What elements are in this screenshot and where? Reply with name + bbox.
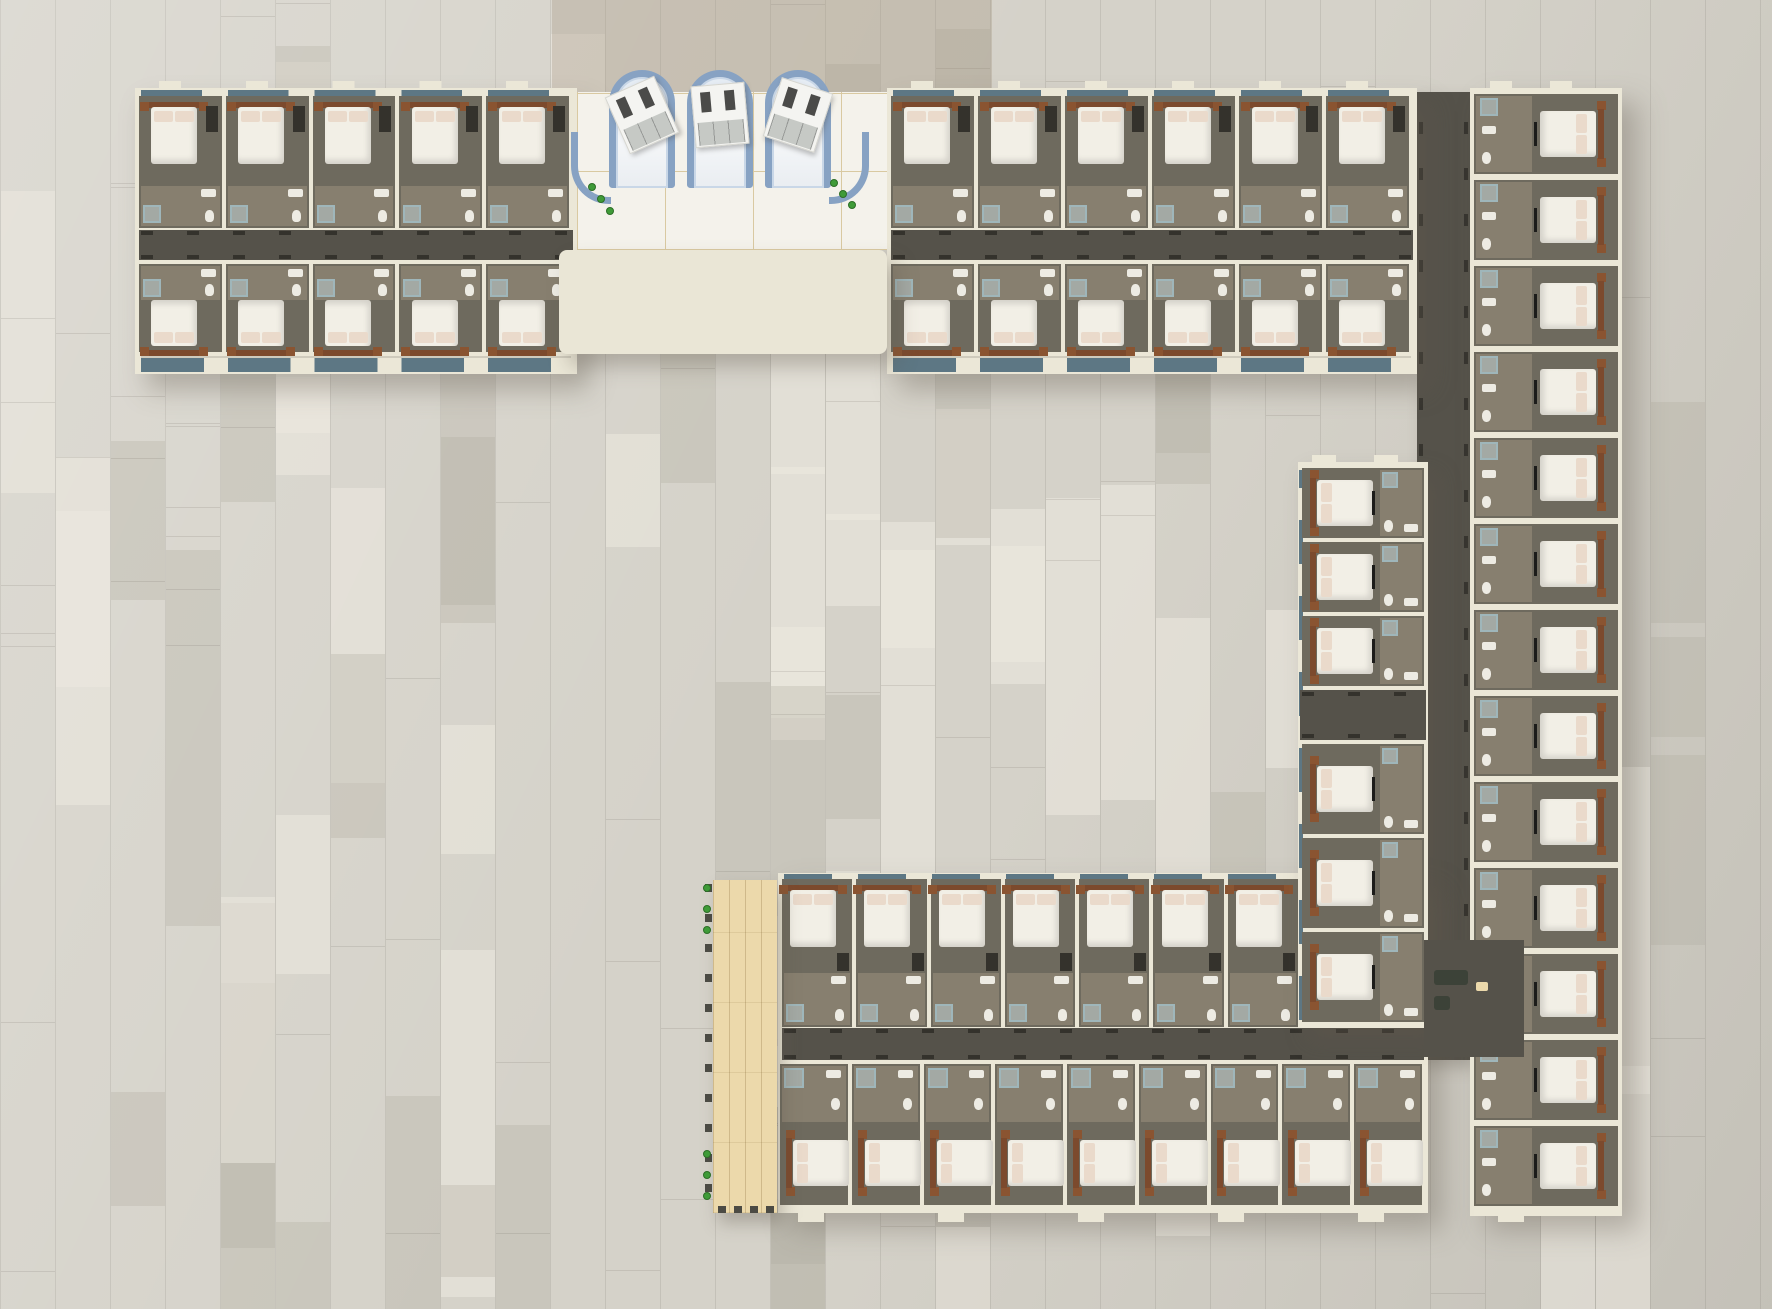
closet: [1132, 106, 1144, 132]
shower-stall: [143, 279, 161, 297]
toilet: [465, 284, 474, 296]
shower-stall: [982, 279, 1000, 297]
shower-stall: [1143, 1068, 1163, 1088]
corridor-door-marks: [1302, 692, 1422, 696]
bed: [1540, 713, 1596, 759]
corridor: [139, 230, 573, 260]
nightstand: [401, 347, 410, 356]
bed-headboard: [1145, 1138, 1151, 1188]
bed-headboard: [1598, 109, 1604, 159]
coffee-table: [1476, 982, 1488, 991]
tv-panel: [1372, 491, 1375, 515]
bed-headboard: [786, 1138, 792, 1188]
pillow: [1016, 894, 1035, 905]
shower-stall: [1069, 205, 1087, 223]
wood-plank-joint: [661, 368, 715, 369]
bed-headboard: [1310, 478, 1316, 528]
sink: [1404, 598, 1418, 606]
wood-plank-joint: [1431, 1293, 1485, 1294]
bed-headboard: [1598, 1141, 1604, 1191]
sink: [1128, 976, 1143, 984]
sink: [969, 1070, 984, 1078]
nightstand: [952, 347, 961, 356]
tv-panel: [1534, 896, 1537, 920]
hotel-room: [1326, 96, 1409, 228]
sink: [1388, 269, 1403, 277]
hotel-room: [780, 1064, 848, 1205]
toilet: [1131, 210, 1140, 222]
tv-panel: [1534, 122, 1537, 146]
wood-plank-joint: [991, 767, 1045, 768]
toilet: [1218, 210, 1227, 222]
nightstand: [1076, 885, 1085, 894]
closet: [958, 106, 970, 132]
wood-floor-plank: [56, 457, 110, 687]
hotel-room: [891, 264, 974, 352]
pillow: [1239, 894, 1258, 905]
wood-floor-plank: [1046, 498, 1100, 815]
nightstand: [401, 102, 410, 111]
toilet: [1058, 1009, 1067, 1021]
pillow: [1576, 544, 1587, 563]
nightstand: [1597, 502, 1606, 511]
wood-plank-joint: [1, 585, 55, 586]
elevator-indicator: [700, 92, 712, 113]
nightstand: [1213, 347, 1222, 356]
wall-tab-strip: [798, 1213, 1618, 1222]
wood-plank-joint: [331, 946, 385, 947]
hotel-room: [226, 264, 309, 352]
corridor-door-marks: [893, 255, 1411, 259]
hotel-room: [139, 96, 222, 228]
nightstand: [1387, 347, 1396, 356]
shower-stall: [1480, 614, 1498, 632]
hotel-room: [1153, 879, 1223, 1027]
wood-floor-plank: [1651, 755, 1705, 945]
closet: [293, 106, 305, 132]
sink: [374, 269, 389, 277]
pillow: [1081, 111, 1100, 122]
pillow: [1012, 1164, 1023, 1183]
hotel-room: [1302, 616, 1424, 686]
shower-stall: [1156, 205, 1174, 223]
toilet: [1482, 496, 1491, 508]
sink: [1127, 189, 1142, 197]
railing-post: [705, 1034, 712, 1042]
nightstand: [1217, 1187, 1226, 1196]
nightstand: [1597, 1104, 1606, 1113]
shower-stall: [895, 205, 913, 223]
wing-vertical: [1298, 462, 1428, 1028]
shower-stall: [1480, 356, 1498, 374]
wood-floor-plank: [496, 1125, 550, 1309]
nightstand: [1597, 1018, 1606, 1027]
pillow: [814, 894, 833, 905]
pillow: [349, 332, 368, 343]
closet: [986, 953, 998, 971]
sofa: [1434, 970, 1468, 985]
pillow: [1189, 111, 1208, 122]
bed-headboard: [858, 1138, 864, 1188]
pillow: [328, 111, 347, 122]
wood-plank-joint: [826, 692, 880, 693]
nightstand: [1151, 885, 1160, 894]
sink: [461, 269, 476, 277]
wood-plank-joint: [606, 1270, 660, 1271]
corridor-door-marks: [1302, 734, 1422, 738]
hotel-room: [1302, 838, 1424, 928]
pillow: [1371, 1143, 1382, 1162]
sink: [1404, 672, 1418, 680]
pillow: [1576, 372, 1587, 391]
hotel-room: [1239, 264, 1322, 352]
pillow: [963, 894, 982, 905]
wood-floor-plank: [276, 815, 330, 974]
nightstand: [1241, 347, 1250, 356]
plant: [703, 926, 711, 934]
pillow: [1168, 111, 1187, 122]
shower-stall: [1286, 1068, 1306, 1088]
toilet: [1384, 1004, 1393, 1016]
sink: [1301, 269, 1316, 277]
bed: [1540, 971, 1596, 1017]
pillow: [1255, 332, 1274, 343]
nightstand: [1225, 885, 1234, 894]
toilet: [1482, 840, 1491, 852]
wood-plank-joint: [1651, 1038, 1705, 1039]
bed-headboard: [1310, 552, 1316, 602]
shower-stall: [895, 279, 913, 297]
sink: [1203, 976, 1218, 984]
wood-plank-joint: [386, 1233, 440, 1234]
pillow: [942, 894, 961, 905]
nightstand: [1241, 102, 1250, 111]
pillow: [1090, 894, 1109, 905]
nightstand: [858, 1187, 867, 1196]
pillow: [1576, 823, 1587, 842]
wood-plank-joint: [1046, 560, 1100, 561]
sink: [1388, 189, 1403, 197]
shower-stall: [1243, 205, 1261, 223]
bed-headboard: [1310, 858, 1316, 908]
bed-headboard: [1360, 1138, 1366, 1188]
nightstand: [1126, 347, 1135, 356]
nightstand: [1597, 588, 1606, 597]
hotel-room: [1211, 1064, 1279, 1205]
shower-stall: [928, 1068, 948, 1088]
tv-panel: [1372, 565, 1375, 589]
corridor-door-marks: [141, 255, 571, 259]
tv-panel: [1534, 1068, 1537, 1092]
toilet: [465, 210, 474, 222]
wood-plank-joint: [1, 318, 55, 319]
nightstand: [1067, 102, 1076, 111]
pillow: [1576, 458, 1587, 477]
toilet: [1482, 1184, 1491, 1196]
pillow: [869, 1164, 880, 1183]
wood-floor-plank: [441, 437, 495, 623]
wood-plank-joint: [166, 426, 220, 427]
hotel-room: [1005, 879, 1075, 1027]
pillow: [1228, 1143, 1239, 1162]
sink: [1214, 269, 1229, 277]
pillow: [1363, 111, 1382, 122]
wood-plank-joint: [1101, 515, 1155, 516]
shower-stall: [403, 279, 421, 297]
wood-floor-plank: [1651, 637, 1705, 737]
hotel-room: [1474, 782, 1618, 862]
shower-stall: [1480, 1130, 1498, 1148]
pillow: [1576, 565, 1587, 584]
hotel-room: [1302, 468, 1424, 538]
nightstand: [140, 347, 149, 356]
pillow: [262, 111, 281, 122]
hotel-room: [313, 96, 396, 228]
toilet: [1392, 284, 1401, 296]
pillow: [1576, 200, 1587, 219]
pillow: [1576, 716, 1587, 735]
toilet: [1392, 210, 1401, 222]
wood-plank-joint: [771, 714, 825, 715]
hotel-room: [1474, 610, 1618, 690]
shower-stall: [1480, 442, 1498, 460]
toilet: [1281, 1009, 1290, 1021]
nightstand: [1328, 347, 1337, 356]
sink: [831, 976, 846, 984]
toilet: [910, 1009, 919, 1021]
railing-post: [718, 1206, 726, 1213]
wood-floor-plank: [826, 514, 880, 606]
railing-post: [705, 1124, 712, 1132]
shower-stall: [1358, 1068, 1378, 1088]
wood-floor-plank: [386, 1096, 440, 1309]
nightstand: [980, 102, 989, 111]
nightstand: [893, 347, 902, 356]
pillow: [241, 332, 260, 343]
sink: [201, 189, 216, 197]
elevator-indicator: [805, 94, 821, 116]
toilet: [378, 210, 387, 222]
railing-post: [750, 1206, 758, 1213]
nightstand: [1310, 527, 1319, 536]
pillow: [907, 332, 926, 343]
shower-stall: [1480, 270, 1498, 288]
sink: [898, 1070, 913, 1078]
toilet: [1118, 1098, 1127, 1110]
hotel-room: [1474, 524, 1618, 604]
sink: [1404, 1008, 1418, 1016]
sink: [826, 1070, 841, 1078]
bed-headboard: [1310, 626, 1316, 676]
wood-plank-joint: [1, 633, 55, 634]
closet: [912, 953, 924, 971]
pillow: [1321, 483, 1332, 502]
wood-plank-joint: [111, 458, 165, 459]
sink: [1256, 1070, 1271, 1078]
toilet: [1207, 1009, 1216, 1021]
toilet: [1482, 238, 1491, 250]
corridor-crossing: [1300, 690, 1426, 740]
pillow: [175, 111, 194, 122]
shower-stall: [982, 205, 1000, 223]
nightstand: [1073, 1187, 1082, 1196]
toilet: [1384, 520, 1393, 532]
hotel-room: [1239, 96, 1322, 228]
pillow: [1321, 631, 1332, 650]
sink: [1482, 470, 1496, 478]
wood-floor-plank: [441, 725, 495, 854]
toilet: [205, 284, 214, 296]
pillow: [994, 332, 1013, 343]
shower-stall: [490, 205, 508, 223]
shower-stall: [230, 279, 248, 297]
wood-plank-joint: [386, 678, 440, 679]
sink: [1482, 728, 1496, 736]
pillow: [241, 111, 260, 122]
pillow: [1321, 957, 1332, 976]
sink: [1277, 976, 1292, 984]
nightstand: [1067, 347, 1076, 356]
toilet: [1333, 1098, 1342, 1110]
pillow: [523, 111, 542, 122]
shower-stall: [230, 205, 248, 223]
wall-tab-strip: [1490, 81, 1602, 88]
pillow: [1255, 111, 1274, 122]
hotel-room: [1139, 1064, 1207, 1205]
bed-headboard: [1598, 195, 1604, 245]
nightstand: [1154, 102, 1163, 111]
shower-stall: [1382, 620, 1398, 636]
shower-stall: [1382, 748, 1398, 764]
floorplan-render: [0, 0, 1772, 1309]
nightstand: [488, 347, 497, 356]
pillow: [328, 332, 347, 343]
toilet: [292, 284, 301, 296]
hotel-room: [1152, 96, 1235, 228]
hotel-room: [1302, 744, 1424, 834]
shower-stall: [1069, 279, 1087, 297]
bed-headboard: [1598, 453, 1604, 503]
hotel-room: [1474, 180, 1618, 260]
closet: [1060, 953, 1072, 971]
wood-plank-joint: [166, 507, 220, 508]
toilet: [835, 1009, 844, 1021]
shower-stall: [1330, 279, 1348, 297]
nightstand: [1210, 885, 1219, 894]
shower-stall: [786, 1004, 804, 1022]
hotel-room: [486, 264, 569, 352]
shower-stall: [1480, 98, 1498, 116]
shower-stall: [1330, 205, 1348, 223]
pillow: [1321, 863, 1332, 882]
wood-plank-joint: [496, 1233, 550, 1234]
shower-stall: [860, 1004, 878, 1022]
shower-stall: [1083, 1004, 1101, 1022]
toilet: [984, 1009, 993, 1021]
sink: [288, 189, 303, 197]
toilet: [292, 210, 301, 222]
nightstand: [227, 102, 236, 111]
shower-stall: [317, 205, 335, 223]
wood-plank-joint: [606, 819, 660, 820]
pillow: [1576, 286, 1587, 305]
shower-stall: [403, 205, 421, 223]
plant: [830, 179, 838, 187]
wood-plank-joint: [606, 961, 660, 962]
nightstand: [1597, 158, 1606, 167]
wood-floor-plank: [936, 1227, 990, 1309]
nightstand: [488, 102, 497, 111]
sink: [1482, 212, 1496, 220]
wood-plank-joint: [166, 645, 220, 646]
toilet: [1305, 284, 1314, 296]
tv-panel: [1534, 1154, 1537, 1178]
closet: [837, 953, 849, 971]
hotel-room: [313, 264, 396, 352]
tv-panel: [1372, 777, 1375, 801]
bed-headboard: [1598, 539, 1604, 589]
nightstand: [140, 102, 149, 111]
shower-stall: [1382, 936, 1398, 952]
railing-post: [705, 1004, 712, 1012]
pillow: [1576, 221, 1587, 240]
hotel-room: [978, 264, 1061, 352]
toilet: [1046, 1098, 1055, 1110]
wood-floor-plank: [276, 377, 330, 475]
hotel-room: [1228, 879, 1298, 1027]
shower-stall: [1382, 472, 1398, 488]
wood-plank-joint: [826, 401, 880, 402]
railing-post: [705, 1184, 712, 1192]
wood-plank-joint: [771, 671, 825, 672]
shower-stall: [784, 1068, 804, 1088]
sink: [953, 189, 968, 197]
closet: [1283, 953, 1295, 971]
pillow: [1228, 1164, 1239, 1183]
wood-plank-joint: [1101, 481, 1155, 482]
pillow: [1321, 978, 1332, 997]
pillow: [1321, 578, 1332, 597]
wood-floor-plank: [826, 695, 880, 819]
elevator-cab: [690, 82, 749, 148]
nightstand: [1328, 102, 1337, 111]
pillow: [1102, 332, 1121, 343]
wood-floor-plank: [1651, 402, 1705, 623]
corridor-door-marks: [141, 231, 571, 235]
wood-plank-joint: [496, 1062, 550, 1063]
pillow: [1168, 332, 1187, 343]
hotel-room: [978, 96, 1061, 228]
hotel-room: [1474, 868, 1618, 948]
tv-panel: [1372, 871, 1375, 895]
toilet: [1044, 210, 1053, 222]
shower-stall: [1480, 184, 1498, 202]
sink: [1214, 189, 1229, 197]
closet: [466, 106, 478, 132]
pillow: [154, 111, 173, 122]
pillow: [175, 332, 194, 343]
closet: [1134, 953, 1146, 971]
pillow: [1321, 769, 1332, 788]
nightstand: [1310, 675, 1319, 684]
closet: [379, 106, 391, 132]
pillow: [1084, 1164, 1095, 1183]
closet: [1209, 953, 1221, 971]
sink: [1400, 1070, 1415, 1078]
bed-headboard: [1598, 797, 1604, 847]
hotel-room: [782, 879, 852, 1027]
toilet: [903, 1098, 912, 1110]
